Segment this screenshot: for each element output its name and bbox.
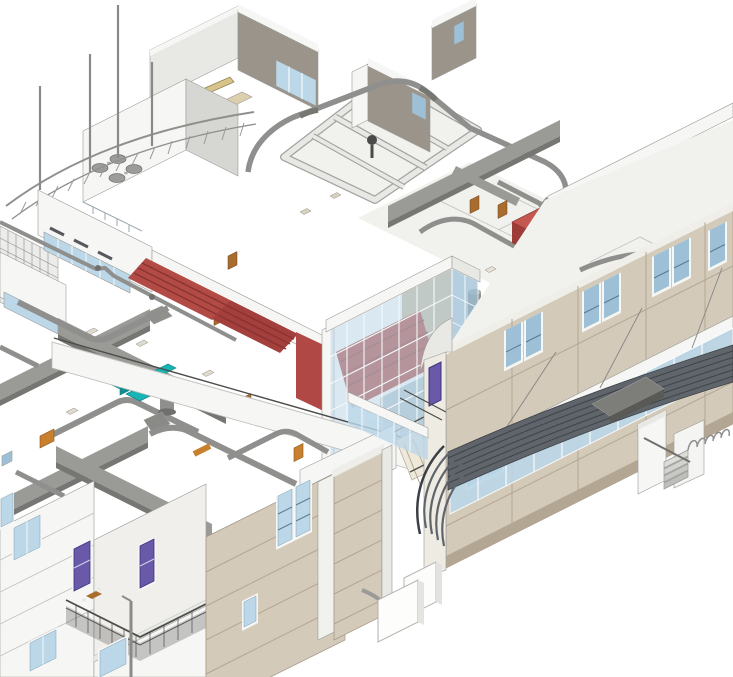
bim-model-viewport[interactable] [0, 0, 733, 677]
pipe-elbow [95, 265, 101, 271]
pilaster-return [382, 445, 392, 611]
roof-drain [367, 135, 377, 145]
bim-3d-scene [0, 0, 733, 677]
purple-entry-door [429, 362, 441, 406]
window [294, 479, 312, 541]
window [276, 488, 294, 550]
purple-window [138, 536, 156, 592]
recessed-channel [318, 474, 334, 640]
pipe-elbow [149, 294, 155, 300]
